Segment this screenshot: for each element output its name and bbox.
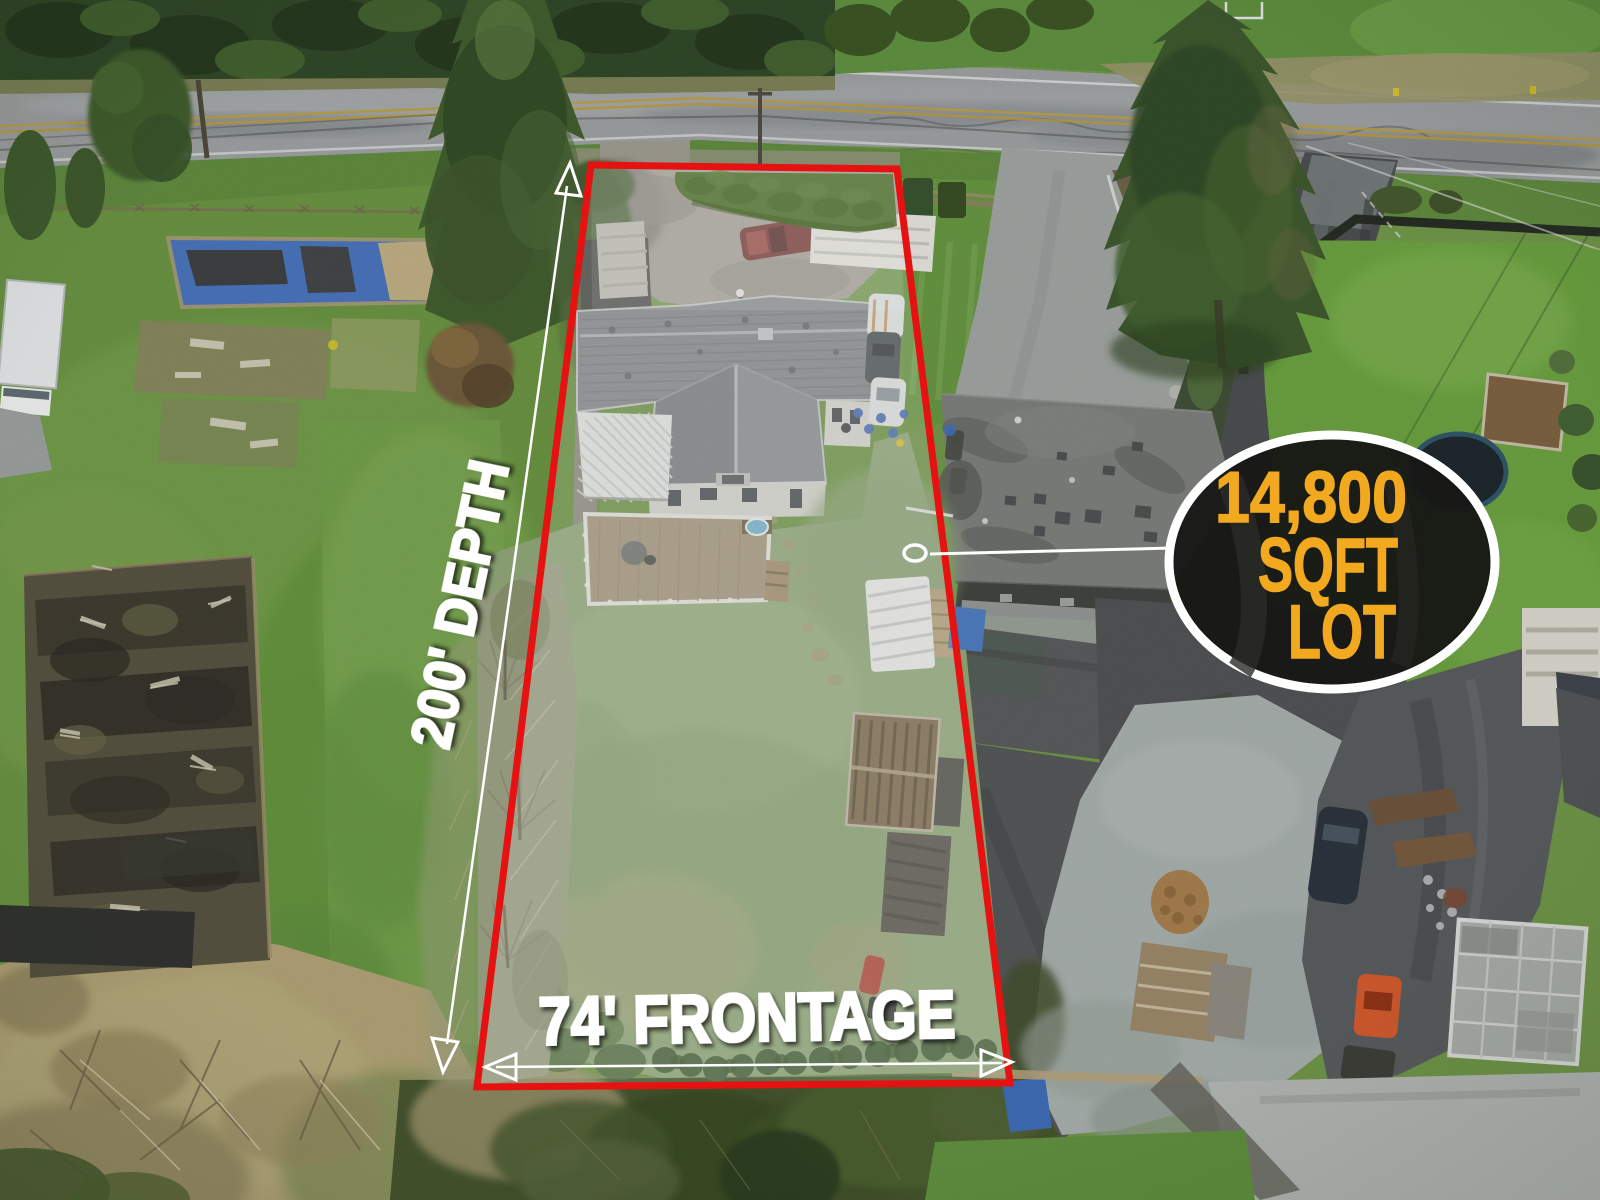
svg-text:LOT: LOT (1288, 590, 1396, 675)
svg-text:74' FRONTAGE: 74' FRONTAGE (538, 976, 956, 1059)
